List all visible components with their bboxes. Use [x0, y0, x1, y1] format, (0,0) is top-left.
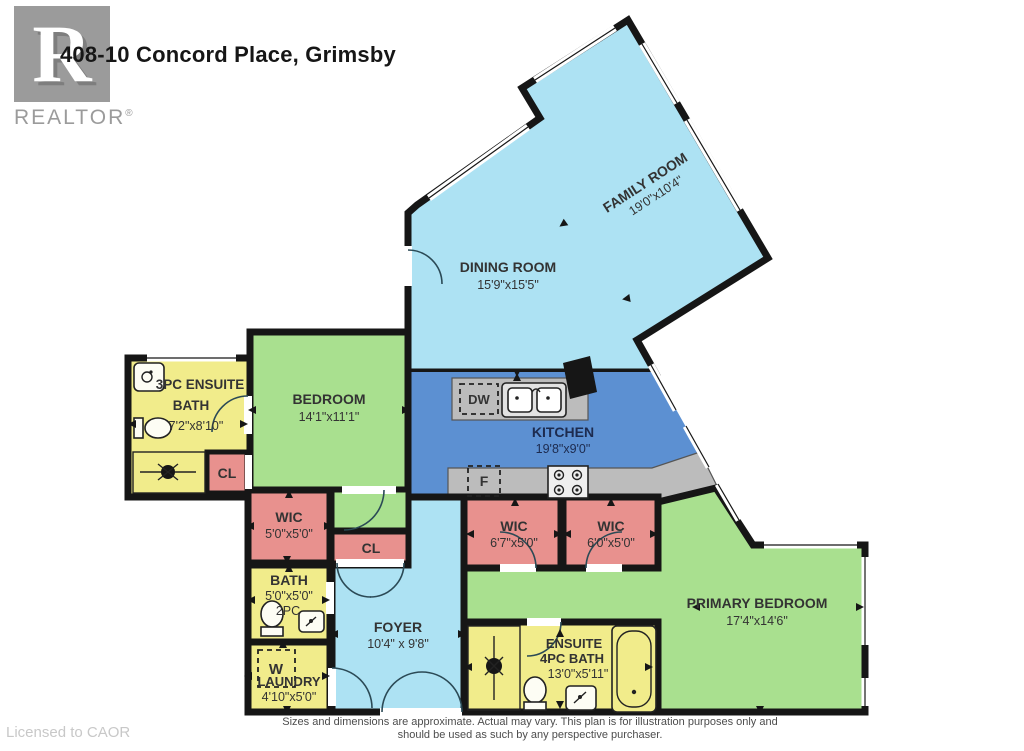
- toilet-icon: [134, 418, 171, 438]
- toilet-icon: [524, 677, 546, 710]
- wic2-label: WIC: [597, 518, 624, 534]
- bath-sink-icon: [299, 611, 324, 632]
- primary-bedroom-dims: 17'4"x14'6": [726, 614, 788, 628]
- wic1-label: WIC: [500, 518, 527, 534]
- bath2pc-type: 2PC: [276, 604, 300, 618]
- ensuite4-label-1: ENSUITE: [546, 636, 603, 651]
- disclaimer-text: Sizes and dimensions are approximate. Ac…: [210, 716, 850, 742]
- disclaimer-line1: Sizes and dimensions are approximate. Ac…: [210, 716, 850, 729]
- foyer-label: FOYER: [374, 619, 422, 635]
- room-family-dining: [408, 20, 768, 372]
- wic1-dims: 6'7"x5'0": [490, 536, 538, 550]
- wic-left-label: WIC: [275, 509, 302, 525]
- laundry-label: LAUNDRY: [257, 674, 320, 689]
- ensuite4-label-2: 4PC BATH: [540, 651, 604, 666]
- bedroom-dims: 14'1"x11'1": [299, 410, 360, 424]
- bedroom-entry-passage: [332, 490, 408, 530]
- washer-label: W: [269, 661, 284, 678]
- dining-room-label: DINING ROOM: [460, 259, 556, 275]
- wic-left-dims: 5'0"x5'0": [265, 527, 313, 541]
- license-text: Licensed to CAOR: [6, 724, 130, 741]
- kitchen-dims: 19'8"x9'0": [536, 442, 591, 456]
- disclaimer-line2: should be used as such by any perspectiv…: [210, 729, 850, 742]
- closet-bath-label: CL: [218, 465, 237, 481]
- laundry-dims: 4'10"x5'0": [262, 690, 317, 704]
- ensuite3-dims: 7'2"x8'10": [169, 419, 224, 433]
- bath2pc-dims: 5'0"x5'0": [265, 589, 313, 603]
- bath2pc-label: BATH: [270, 572, 308, 588]
- bathtub-icon: [612, 626, 656, 712]
- floorplan-drawing: FAMILY ROOM 19'0"x10'4" DINING ROOM 15'9…: [0, 0, 1024, 751]
- bedroom-label: BEDROOM: [292, 391, 365, 407]
- ensuite4-dims: 13'0"x5'11": [548, 667, 609, 681]
- foyer-dims: 10'4" x 9'8": [367, 637, 429, 651]
- ensuite3-label-1: 3PC ENSUITE: [156, 377, 245, 392]
- primary-bedroom-label: PRIMARY BEDROOM: [687, 595, 828, 611]
- closet-hall-label: CL: [362, 540, 381, 556]
- kitchen-sink-icon: [502, 383, 566, 417]
- wic2-dims: 6'0"x5'0": [587, 536, 635, 550]
- stove-icon: [548, 466, 588, 498]
- dishwasher-label: DW: [468, 392, 490, 407]
- dining-room-dims: 15'9"x15'5": [477, 278, 539, 292]
- bath-sink-icon: [566, 686, 596, 710]
- fridge-label: F: [480, 473, 489, 489]
- ensuite3-label-2: BATH: [173, 398, 210, 413]
- floorplan-page: R REALTOR® 408-10 Concord Place, Grimsby: [0, 0, 1024, 751]
- kitchen-label: KITCHEN: [532, 424, 594, 440]
